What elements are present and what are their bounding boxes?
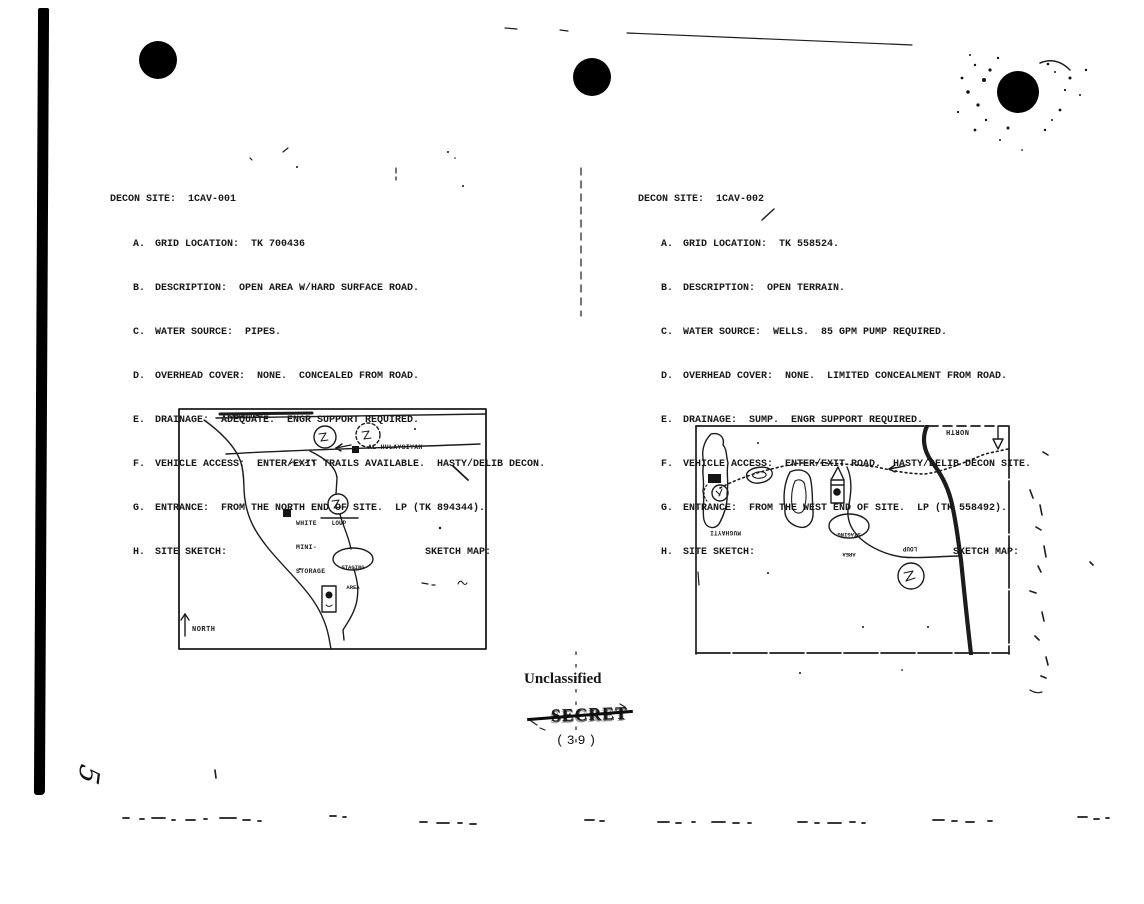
decon-site-block-1: DECON SITE: 1CAV-001 A.GRID LOCATION: TK… [110,173,545,592]
bottom-dash-marks [123,816,1109,824]
classification-marking: Unclassified [524,671,602,688]
site-item: D.OVERHEAD COVER: NONE. CONCEALED FROM R… [133,372,545,382]
site-item: G.ENTRANCE: FROM THE WEST END OF SITE. L… [661,504,1031,514]
site-item: C.WATER SOURCE: WELLS. 85 GPM PUMP REQUI… [661,328,1031,338]
site-item: E.DRAINAGE: ADEQUATE. ENGR SUPPORT REQUI… [133,416,545,426]
site-title: DECON SITE: 1CAV-002 [638,195,1031,205]
site-item: H.SITE SKETCH:SKETCH MAP: [661,548,1031,558]
decon-site-block-2: DECON SITE: 1CAV-002 A.GRID LOCATION: TK… [638,173,1031,592]
site-item: B.DESCRIPTION: OPEN TERRAIN. [661,284,1031,294]
sketch-map-label: SKETCH MAP: [953,548,1019,558]
site-item: A.GRID LOCATION: TK 700436 [133,240,545,250]
sketch-map-label: SKETCH MAP: [425,548,491,558]
map-north-label: NORTH [192,627,216,634]
site-item: H.SITE SKETCH:SKETCH MAP: [133,548,545,558]
page-number: (39) [556,733,599,748]
site-item: E.DRAINAGE: SUMP. ENGR SUPPORT REQUIRED. [661,416,1031,426]
site-item: A.GRID LOCATION: TK 558524. [661,240,1031,250]
site-item: F.VEHICLE ACCESS: ENTER/EXIT ROAD. HASTY… [661,460,1031,470]
ink-smudges [1030,452,1093,678]
site-item: G.ENTRANCE: FROM THE NORTH END OF SITE. … [133,504,545,514]
site-item: C.WATER SOURCE: PIPES. [133,328,545,338]
site-item: D.OVERHEAD COVER: NONE. LIMITED CONCEALM… [661,372,1031,382]
site-item: F.VEHICLE ACCESS: ENTER/EXIT TRAILS AVAI… [133,460,545,470]
site-title: DECON SITE: 1CAV-001 [110,195,545,205]
site-item: B.DESCRIPTION: OPEN AREA W/HARD SURFACE … [133,284,545,294]
scanned-document-page: DECON SITE: 1CAV-001 A.GRID LOCATION: TK… [0,0,1144,904]
